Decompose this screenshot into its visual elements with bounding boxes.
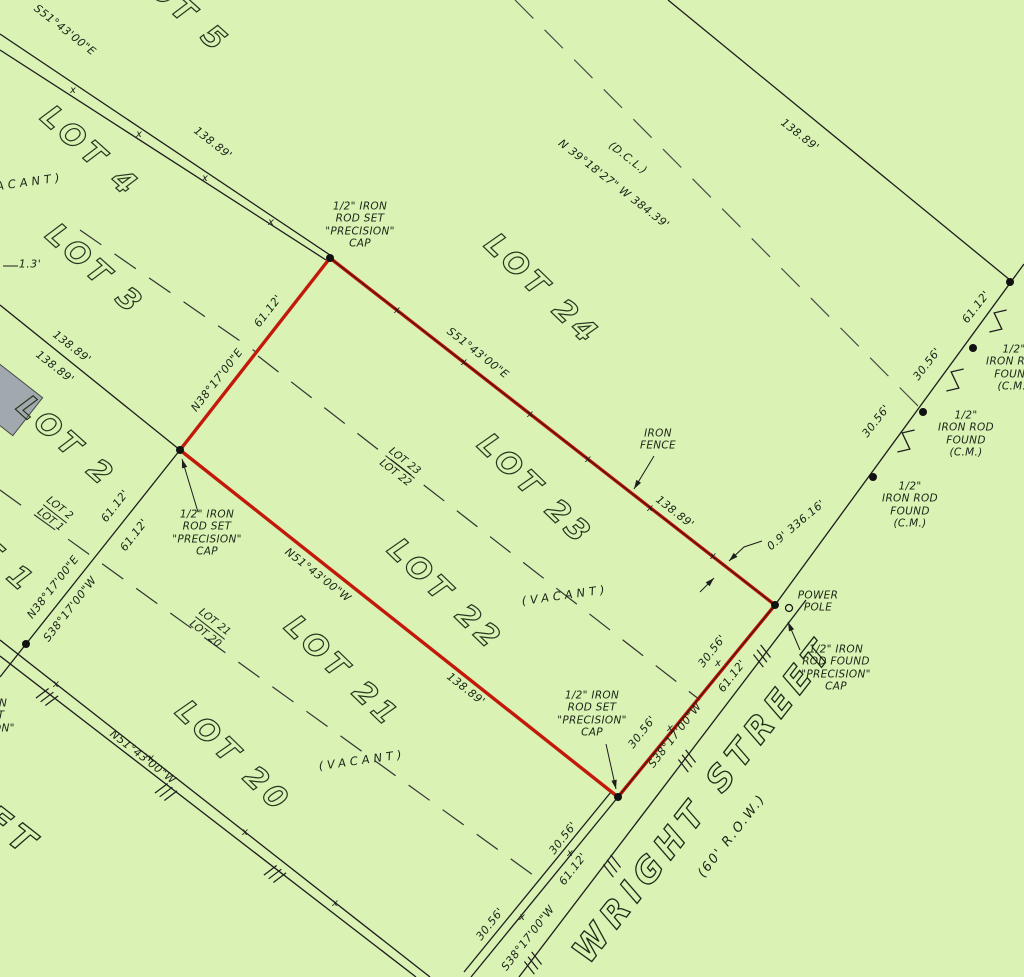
lot5-lot4-fence-a bbox=[0, 34, 330, 255]
note-line: CAP bbox=[325, 237, 395, 249]
fence-x-tick: x bbox=[646, 503, 653, 514]
fence-x-tick: x bbox=[714, 658, 721, 669]
note-iron-rod-found-3: 1/2"IRON RODFOUND(C.M.) bbox=[986, 343, 1024, 393]
fence-x-tick: x bbox=[460, 357, 467, 368]
power-pole-symbol bbox=[786, 605, 793, 612]
fence-x-tick: x bbox=[526, 409, 533, 420]
note-line: POLE bbox=[798, 602, 838, 614]
note-line: ROD SET bbox=[557, 702, 627, 714]
iron-rod-point bbox=[614, 793, 622, 801]
line-break-symbol bbox=[946, 369, 963, 391]
deed-call-line-dashed bbox=[515, 0, 924, 412]
note-line: 1/2" bbox=[938, 409, 994, 421]
note-line: "PRECISION" bbox=[325, 225, 395, 237]
leader-arrowhead bbox=[182, 459, 187, 468]
fence-x-tick: x bbox=[52, 679, 59, 690]
iron-rod-point bbox=[1006, 278, 1014, 286]
note-line: CAP bbox=[801, 680, 871, 692]
fence-x-tick: x bbox=[584, 454, 591, 465]
iron-rod-point bbox=[22, 640, 30, 648]
line-break-symbol bbox=[989, 310, 1006, 332]
note-line: 1/2" IRON bbox=[557, 689, 627, 701]
note-iron-rod-found-2: 1/2"IRON RODFOUND(C.M.) bbox=[938, 409, 994, 459]
survey-plat-canvas: xxxxxxxxxxxxxxxxxx S51°43'00"E138.89'S51… bbox=[0, 0, 1024, 977]
note-line: (C.M.) bbox=[986, 380, 1024, 392]
iron-rod-point bbox=[771, 601, 779, 609]
note-line: 1/2" IRON bbox=[172, 508, 242, 520]
note-line: 1/2" bbox=[882, 480, 938, 492]
note-line: FOUND bbox=[882, 505, 938, 517]
iron-rod-point bbox=[869, 473, 877, 481]
iron-rod-point bbox=[326, 254, 334, 262]
dimension-label: 1.3' bbox=[19, 258, 42, 271]
fence-x-tick: x bbox=[331, 898, 338, 909]
note-line: POWER bbox=[798, 590, 838, 602]
note-line: FENCE bbox=[640, 440, 676, 452]
fence-x-tick: x bbox=[241, 827, 248, 838]
note-iron-rod-set-edge: 1/2" IRONROD SET"PRECISION"CAP bbox=[0, 697, 15, 747]
note-power-pole: POWERPOLE bbox=[798, 590, 838, 615]
note-line: (C.M.) bbox=[938, 446, 994, 458]
fence-x-tick: x bbox=[69, 85, 76, 96]
fence-x-tick: x bbox=[518, 912, 525, 923]
leader-arrowhead bbox=[788, 622, 794, 631]
note-line: "PRECISION" bbox=[172, 533, 242, 545]
note-line: 1/2" IRON bbox=[0, 697, 15, 709]
note-line: ROD SET bbox=[0, 710, 15, 722]
leader-arrowhead bbox=[611, 780, 616, 789]
note-line: IRON bbox=[640, 428, 676, 440]
note-line: CAP bbox=[557, 726, 627, 738]
note-line: ROD FOUND bbox=[801, 656, 871, 668]
iron-rod-point bbox=[176, 446, 184, 454]
iron-rod-point bbox=[919, 408, 927, 416]
iron-rod-point bbox=[969, 344, 977, 352]
note-line: (C.M.) bbox=[882, 517, 938, 529]
note-line: FOUND bbox=[986, 368, 1024, 380]
note-iron-fence: IRONFENCE bbox=[640, 428, 676, 453]
note-line: "PRECISION" bbox=[557, 714, 627, 726]
fence-x-tick: x bbox=[709, 551, 716, 562]
note-iron-rod-found-pole: 1/2" IRONROD FOUND"PRECISION"CAP bbox=[801, 643, 871, 693]
note-line: "PRECISION" bbox=[801, 668, 871, 680]
note-line: 1/2" IRON bbox=[801, 643, 871, 655]
note-line: 1/2" IRON bbox=[325, 200, 395, 212]
note-line: IRON ROD bbox=[938, 422, 994, 434]
note-line: CAP bbox=[172, 545, 242, 557]
note-iron-rod-set-top: 1/2" IRONROD SET"PRECISION"CAP bbox=[325, 200, 395, 250]
fence-x-tick: x bbox=[566, 848, 573, 859]
note-iron-rod-set-bottom: 1/2" IRONROD SET"PRECISION"CAP bbox=[557, 689, 627, 739]
note-line: 1/2" bbox=[986, 343, 1024, 355]
fence-x-tick: x bbox=[135, 129, 142, 140]
fence-x-tick: x bbox=[393, 305, 400, 316]
fence-x-tick: x bbox=[201, 173, 208, 184]
note-line: "PRECISION" bbox=[0, 722, 15, 734]
note-line: IRON ROD bbox=[986, 356, 1024, 368]
fence-x-tick: x bbox=[267, 217, 274, 228]
note-line: FOUND bbox=[938, 434, 994, 446]
lot5-lot4-fence-b bbox=[0, 50, 326, 260]
note-iron-rod-found-1: 1/2"IRON RODFOUND(C.M.) bbox=[882, 480, 938, 530]
note-line: ROD SET bbox=[325, 213, 395, 225]
note-line: IRON ROD bbox=[882, 493, 938, 505]
leader-arrowhead bbox=[634, 480, 641, 489]
note-line: CAP bbox=[0, 734, 15, 746]
note-iron-rod-set-left: 1/2" IRONROD SET"PRECISION"CAP bbox=[172, 508, 242, 558]
note-line: ROD SET bbox=[172, 521, 242, 533]
lot24-lot25-line bbox=[668, 0, 1010, 280]
